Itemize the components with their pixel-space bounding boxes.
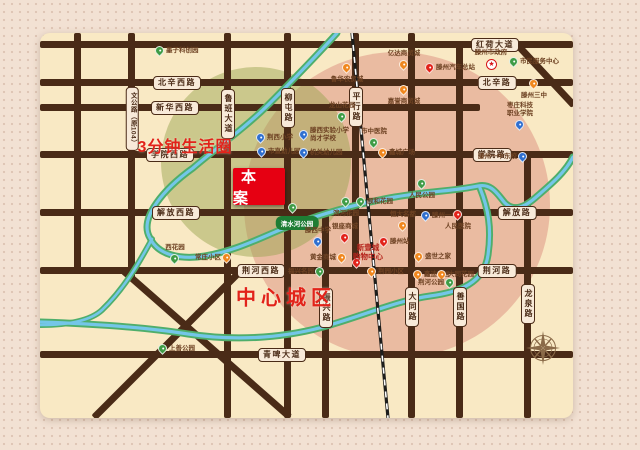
poi-label: 人民医院 [445, 223, 471, 231]
poi-label: 福兴名园 [288, 268, 314, 276]
poi-label: 鑫城广场 [389, 149, 415, 157]
poi-label: 鲁华农贸城 [331, 76, 364, 84]
park-pin-icon [288, 203, 298, 214]
poi-pin-icon [518, 152, 528, 163]
road-label: 新华西路 [151, 101, 199, 115]
road-label: 北辛西路 [153, 76, 201, 90]
poi-label: 常庄小区 [195, 254, 221, 262]
road-label: 北辛路 [478, 76, 517, 90]
road-label: 荆河西路 [237, 264, 285, 278]
poi-pin-icon [425, 63, 435, 74]
road-label: 龙泉路 [521, 284, 535, 324]
road-line [74, 33, 81, 273]
zone-label: 3分钟生活圈 [138, 133, 233, 157]
poi-label: 颐和花园 [367, 198, 393, 206]
poi-pin-icon [367, 267, 377, 278]
mall-label-line1: 新壹城 [353, 243, 383, 252]
poi-pin-icon [399, 60, 409, 71]
poi-label: 人民公园 [409, 192, 435, 200]
compass-rose-icon [524, 329, 562, 367]
poi-pin-icon [341, 197, 351, 208]
road-line [40, 209, 573, 216]
road-label: 解放路 [498, 206, 537, 220]
poi-pin-icon [399, 85, 409, 96]
screenshot-root: { "site_label": "本案", "zones": [ {"label… [0, 0, 640, 450]
poi-label: 滕州汽车总站 [436, 64, 475, 72]
poi-label: 嘉誉商贸城 [388, 98, 421, 106]
poi-pin-icon [299, 130, 309, 141]
poi-pin-icon [398, 221, 408, 232]
road-label: 荆河路 [478, 264, 517, 278]
poi-pin-icon [340, 233, 350, 244]
poi-pin-icon [356, 197, 366, 208]
poi-pin-icon [337, 253, 347, 264]
poi-label: 滕西中学 [305, 227, 331, 235]
poi-label: 滕州一中东校 [478, 153, 517, 161]
poi-pin-icon [421, 211, 431, 222]
poi-label: 滕州站 [390, 238, 410, 246]
poi-pin-icon [170, 254, 180, 265]
poi-label: 市中医院 [361, 128, 387, 136]
poi-pin-icon [155, 46, 165, 57]
poi-pin-icon [313, 237, 323, 248]
poi-pin-icon [256, 133, 266, 144]
poi-label: 黄金商城 [310, 254, 336, 262]
road-line [91, 268, 243, 418]
poi-pin-icon [529, 79, 539, 90]
poi-pin-icon [414, 252, 424, 263]
road-line [128, 33, 135, 278]
poi-label: 上善公园 [169, 345, 195, 353]
poi-pin-icon [299, 148, 309, 159]
poi-pin-icon [257, 147, 267, 158]
project-site-badge: 本案 [233, 168, 285, 205]
road-label: 大同路 [405, 287, 419, 327]
road-label: 青啤大道 [258, 348, 306, 362]
road-line [352, 33, 359, 271]
poi-label: 亿达商贸城 [388, 50, 421, 58]
poi-label: 滕西实验小学尚才学校 [310, 127, 349, 143]
poi-pin-icon [158, 344, 168, 355]
poi-pin-icon [315, 267, 325, 278]
poi-label: 龙山花园 [329, 102, 355, 110]
road-line [408, 33, 415, 418]
poi-label: 盛世之家 [425, 253, 451, 261]
poi-pin-icon [417, 179, 427, 190]
poi-pin-icon [515, 120, 525, 131]
poi-label: 市直幼儿园 [268, 148, 301, 156]
poi-label: 市民服务中心 [520, 58, 559, 66]
poi-label: 滨河花园 [333, 210, 359, 218]
road-label: 鲁班大道 [221, 89, 235, 139]
poi-pin-icon [453, 210, 463, 221]
poi-label: 银座商城 [332, 223, 358, 231]
poi-label: 荆河公园 [418, 279, 444, 287]
poi-label: 恒大名都 [390, 211, 416, 219]
poi-label: 荆园小区 [378, 268, 404, 276]
road-label: 文公路（原104） [126, 87, 139, 151]
mall-label-line2: 购物中心 [353, 252, 383, 261]
poi-pin-icon [342, 63, 352, 74]
poi-label: 枣庄科技职业学院 [507, 102, 533, 118]
poi-label: 荆西小学 [267, 134, 293, 142]
road-label: 解放西路 [152, 206, 200, 220]
poi-label: 滕州市政府 [475, 49, 508, 57]
zone-label: 中心城区 [236, 282, 336, 311]
poi-label: 滕州三中 [521, 92, 547, 100]
road-label: 柳屯路 [281, 88, 295, 128]
poi-pin-icon [222, 253, 232, 264]
location-map-panel: 本案 清水河公园 新壹城 购物中心 红荷大道北辛西路北辛路新华西路学院西路学院路… [40, 33, 573, 418]
poi-pin-icon: ★ [486, 59, 496, 70]
poi-pin-icon [509, 57, 519, 68]
road-line [40, 351, 573, 358]
poi-pin-icon [378, 148, 388, 159]
poi-label: 墨子科创园 [166, 47, 199, 55]
mall-label: 新壹城 购物中心 [353, 243, 383, 261]
poi-pin-icon [337, 112, 347, 123]
poi-label: 西花园 [165, 244, 185, 252]
poi-pin-icon [445, 278, 455, 289]
poi-label: 机关幼儿园 [310, 149, 343, 157]
road-label: 善国路 [453, 287, 467, 327]
